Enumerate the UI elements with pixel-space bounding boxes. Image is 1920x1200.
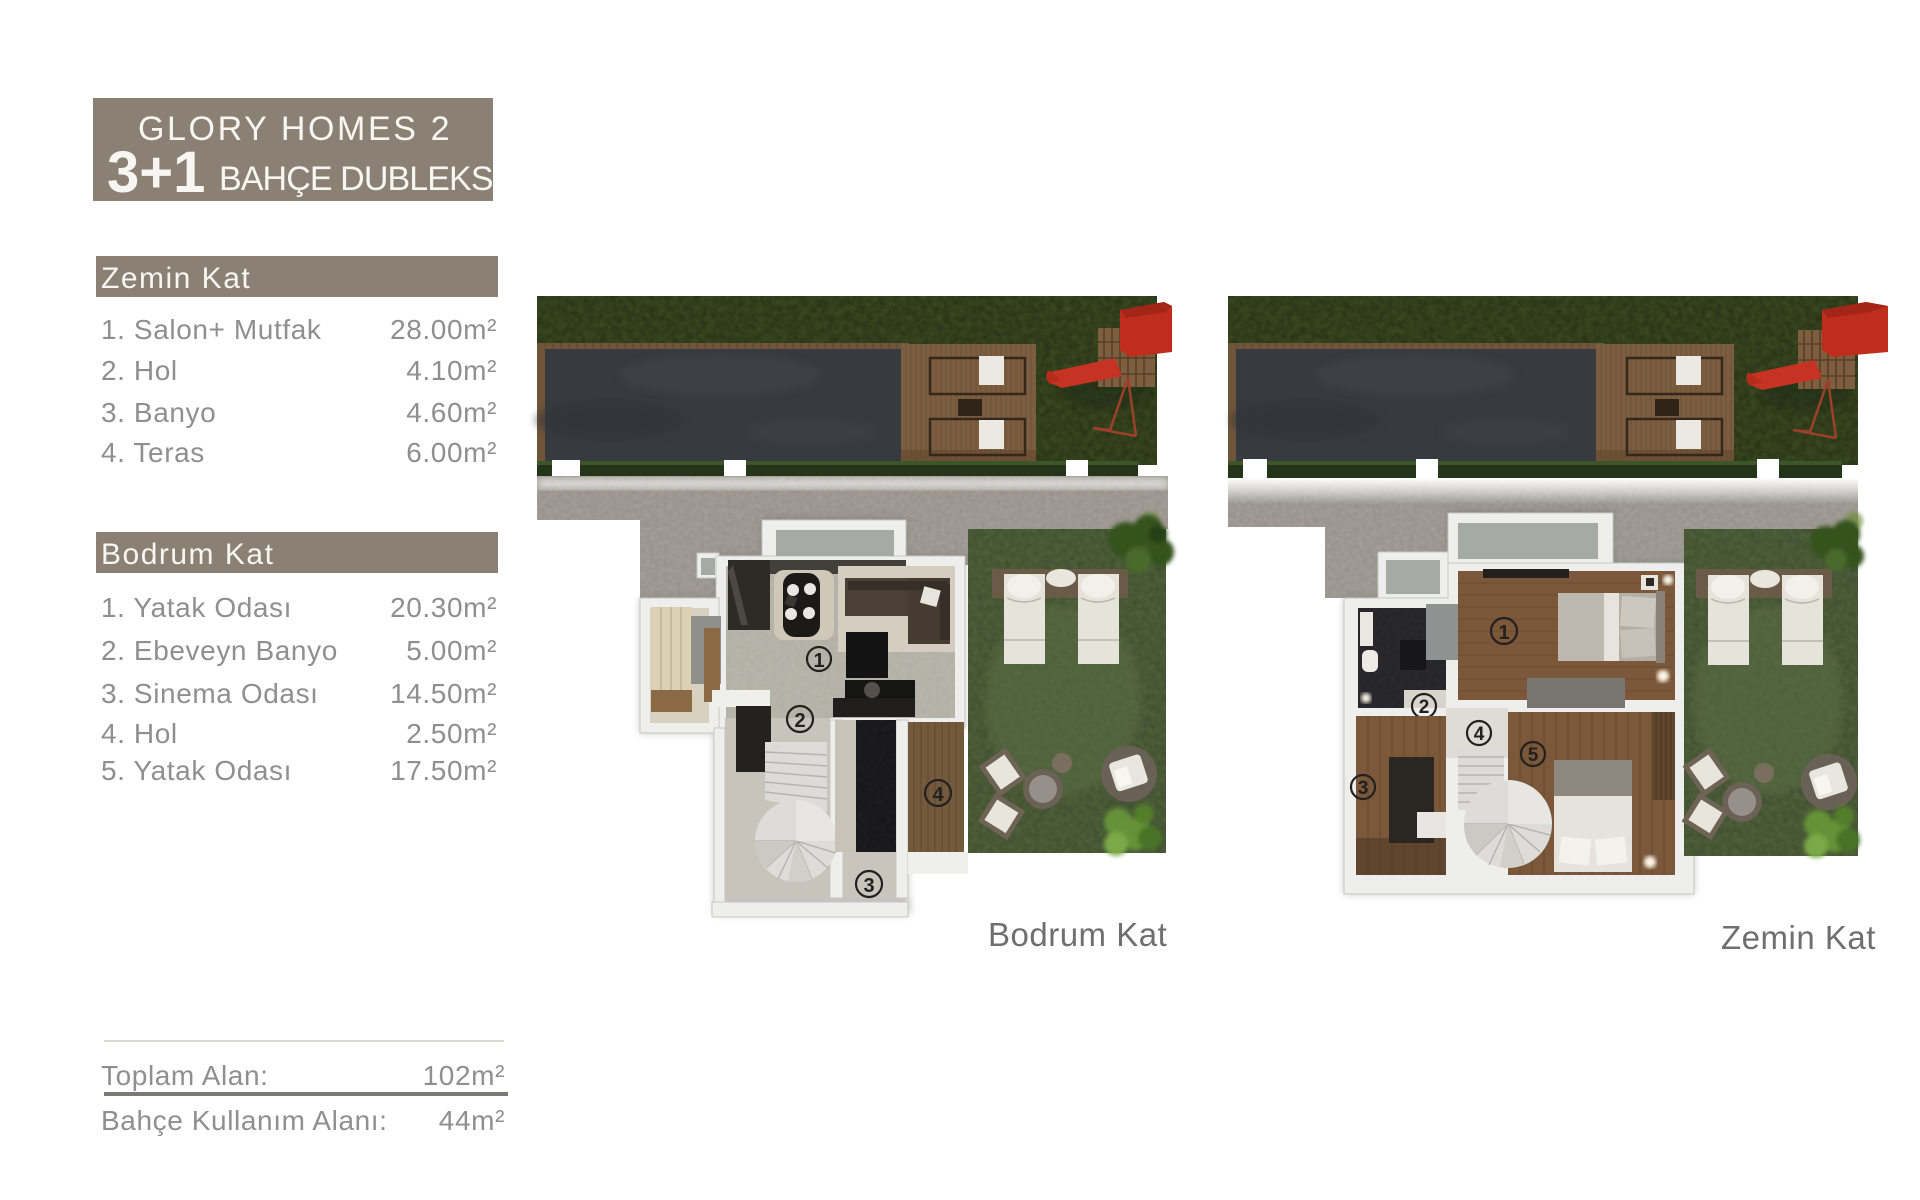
svg-text:4: 4 (1474, 724, 1485, 745)
svg-text:3: 3 (1358, 778, 1369, 799)
svg-text:2: 2 (794, 710, 805, 732)
svg-text:1: 1 (1498, 622, 1509, 644)
svg-text:5: 5 (1528, 745, 1539, 766)
svg-text:2: 2 (1419, 697, 1430, 718)
svg-text:4: 4 (932, 784, 944, 806)
svg-text:1: 1 (813, 650, 824, 672)
svg-text:3: 3 (863, 875, 874, 897)
